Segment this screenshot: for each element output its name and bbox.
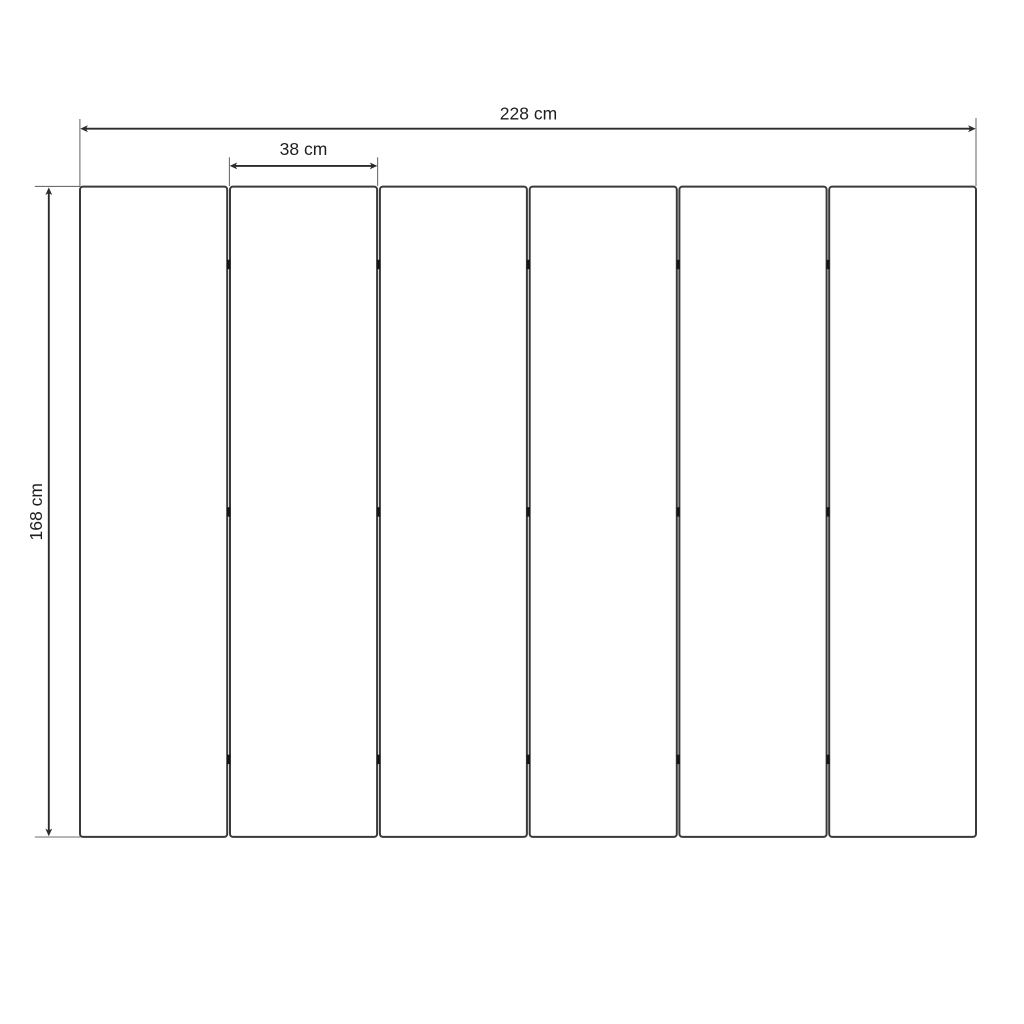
svg-text:38 cm: 38 cm — [280, 139, 328, 159]
svg-text:228 cm: 228 cm — [500, 104, 557, 124]
svg-text:168 cm: 168 cm — [26, 483, 46, 540]
